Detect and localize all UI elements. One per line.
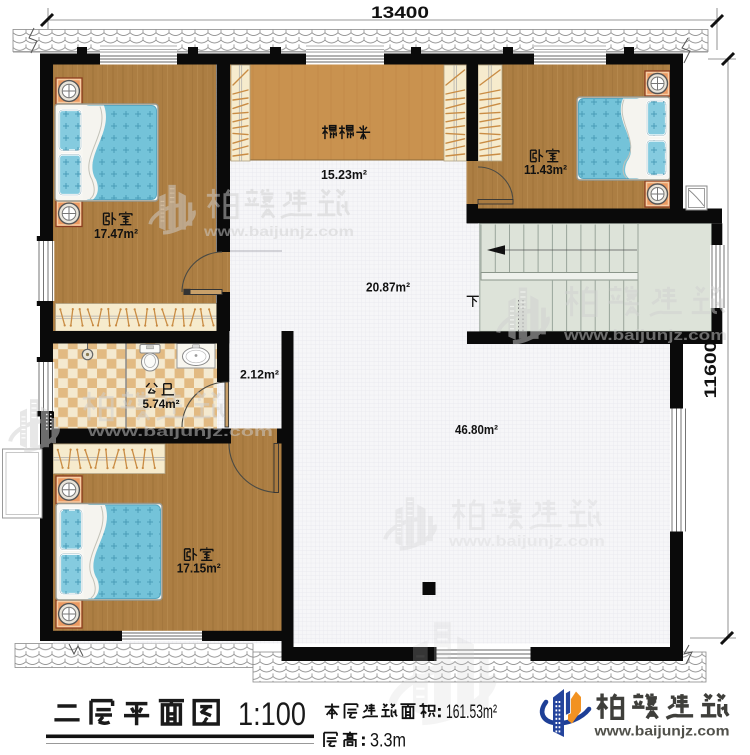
svg-text:17.47m²: 17.47m² bbox=[94, 226, 139, 241]
svg-text:2.12m²: 2.12m² bbox=[240, 368, 279, 382]
svg-text:15.23m²: 15.23m² bbox=[321, 167, 368, 182]
svg-text:17.15m²: 17.15m² bbox=[177, 561, 222, 576]
svg-text:www.baijunjz.com: www.baijunjz.com bbox=[593, 724, 729, 739]
svg-text:5.74m²: 5.74m² bbox=[143, 397, 180, 411]
svg-text:3.3m: 3.3m bbox=[370, 731, 406, 752]
svg-text:1:100: 1:100 bbox=[238, 696, 306, 732]
svg-text:161.53m²: 161.53m² bbox=[446, 702, 497, 723]
svg-text:11.43m²: 11.43m² bbox=[524, 162, 568, 177]
svg-text:www.baijunjz.com: www.baijunjz.com bbox=[86, 424, 273, 439]
svg-text:www.baijunjz.com: www.baijunjz.com bbox=[448, 533, 605, 550]
svg-text:11600: 11600 bbox=[701, 341, 720, 399]
svg-text:20.87m²: 20.87m² bbox=[366, 280, 411, 295]
svg-text:46.80m²: 46.80m² bbox=[455, 422, 499, 437]
svg-text:13400: 13400 bbox=[371, 3, 429, 22]
svg-text:www.baijunjz.com: www.baijunjz.com bbox=[203, 223, 354, 239]
svg-text:www.baijunjz.com: www.baijunjz.com bbox=[563, 327, 727, 344]
